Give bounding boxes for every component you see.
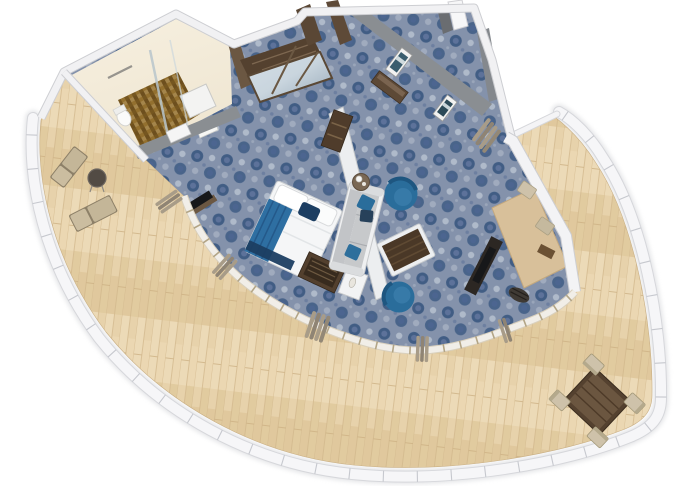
lamp-side-table (353, 174, 370, 191)
suite-floorplan-render (0, 0, 680, 486)
armchair-1-seat (394, 188, 412, 206)
armchair-2-seat (394, 287, 411, 304)
table-lamp (356, 176, 362, 182)
divider-tick (655, 363, 666, 364)
armchair-1 (385, 178, 418, 211)
floorplan-svg (0, 0, 680, 486)
sofa-pillow-navy (359, 209, 373, 222)
armchair-2 (384, 282, 415, 313)
table-bottle (362, 182, 366, 186)
